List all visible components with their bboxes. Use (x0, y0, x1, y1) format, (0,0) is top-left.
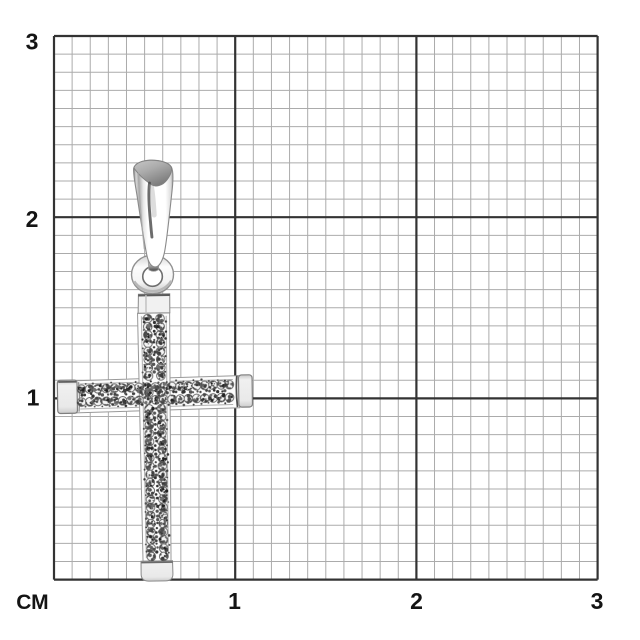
svg-text:1: 1 (27, 385, 40, 411)
svg-text:2: 2 (410, 588, 423, 614)
svg-text:1: 1 (228, 588, 241, 614)
svg-text:СМ: СМ (16, 591, 48, 614)
svg-text:3: 3 (591, 588, 604, 614)
svg-text:3: 3 (26, 29, 39, 55)
svg-text:2: 2 (26, 206, 39, 232)
